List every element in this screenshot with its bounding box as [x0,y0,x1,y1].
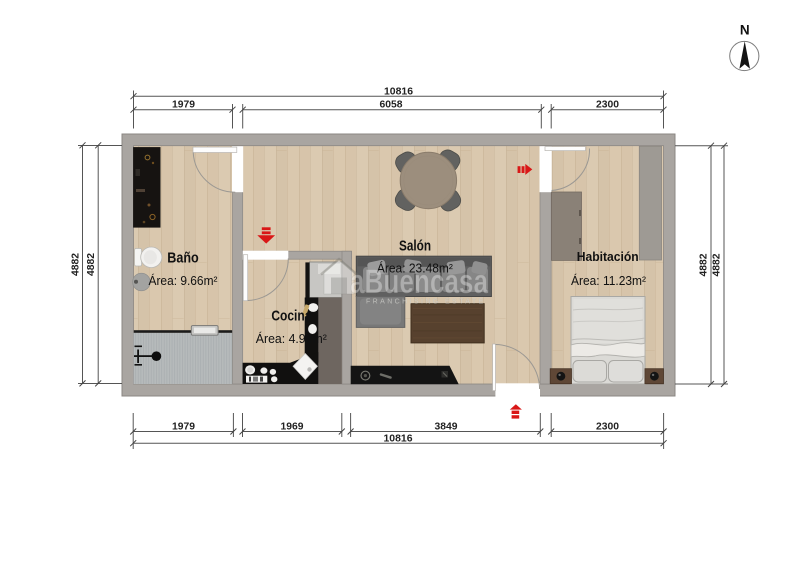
svg-text:4882: 4882 [712,253,723,276]
svg-text:1969: 1969 [281,421,304,432]
svg-text:6058: 6058 [380,100,403,111]
svg-text:4882: 4882 [71,253,82,276]
svg-text:Área: 4.96m²: Área: 4.96m² [256,331,328,346]
svg-text:1979: 1979 [172,421,195,432]
svg-text:4882: 4882 [699,253,710,276]
svg-text:Área: 11.23m²: Área: 11.23m² [571,273,647,288]
svg-text:FRANCHISING ESTATE: FRANCHISING ESTATE [366,299,486,306]
svg-text:4882: 4882 [86,253,97,276]
svg-text:3849: 3849 [435,421,458,432]
svg-text:Salón: Salón [399,238,431,255]
svg-text:Baño: Baño [167,250,199,267]
svg-text:2300: 2300 [596,421,619,432]
svg-text:1979: 1979 [172,100,195,111]
svg-text:N: N [740,23,750,38]
svg-text:aBuencasa: aBuencasa [350,263,489,301]
svg-text:2300: 2300 [596,100,619,111]
svg-text:Habitación: Habitación [577,250,639,264]
svg-text:10816: 10816 [384,433,413,444]
svg-text:10816: 10816 [384,87,413,98]
svg-text:Área: 9.66m²: Área: 9.66m² [149,273,219,288]
svg-text:Cocina: Cocina [271,308,312,325]
